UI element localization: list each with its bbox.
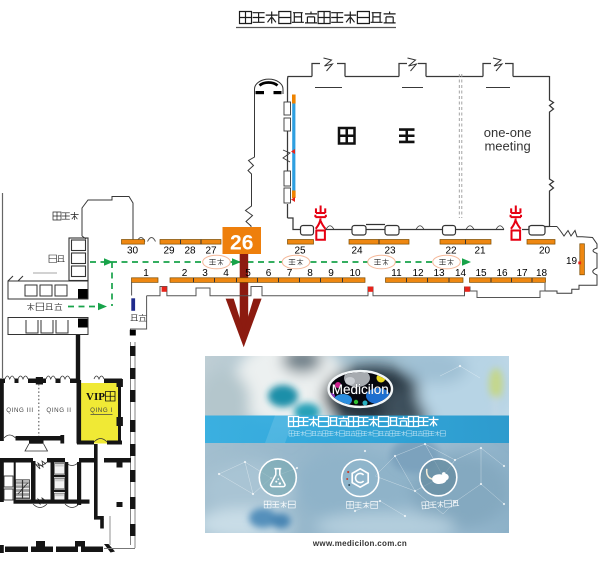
svg-text:2: 2: [182, 268, 188, 279]
svg-text:30: 30: [127, 246, 139, 257]
svg-text:QING III: QING III: [6, 407, 34, 414]
svg-text:26: 26: [230, 232, 253, 255]
svg-text:24: 24: [351, 246, 363, 257]
svg-text:16: 16: [496, 268, 508, 279]
svg-text:Medicilon: Medicilon: [332, 382, 389, 397]
svg-text:meeting: meeting: [484, 139, 530, 154]
svg-text:12: 12: [412, 268, 424, 279]
svg-text:QING I: QING I: [90, 407, 113, 414]
svg-text:9: 9: [328, 268, 334, 279]
svg-text:7: 7: [287, 268, 293, 279]
svg-text:28: 28: [184, 246, 196, 257]
svg-text:3: 3: [202, 268, 208, 279]
svg-text:18: 18: [536, 268, 548, 279]
svg-text:27: 27: [205, 246, 217, 257]
svg-text:22: 22: [445, 246, 457, 257]
svg-text:21: 21: [474, 246, 486, 257]
svg-text:20: 20: [539, 246, 551, 257]
svg-text:19: 19: [566, 256, 578, 267]
svg-text:15: 15: [475, 268, 487, 279]
svg-text:QING II: QING II: [46, 407, 71, 414]
svg-text:8: 8: [307, 268, 313, 279]
svg-text:1: 1: [143, 268, 149, 279]
svg-text:25: 25: [294, 246, 306, 257]
svg-text:29: 29: [163, 246, 175, 257]
svg-text:6: 6: [266, 268, 272, 279]
svg-text:10: 10: [349, 268, 361, 279]
svg-text:14: 14: [455, 268, 467, 279]
svg-text:11: 11: [391, 268, 402, 279]
svg-text:4: 4: [223, 268, 229, 279]
svg-text:VIP: VIP: [86, 391, 105, 403]
svg-text:13: 13: [433, 268, 445, 279]
svg-text:17: 17: [516, 268, 528, 279]
svg-text:5: 5: [245, 268, 251, 279]
svg-text:23: 23: [384, 246, 396, 257]
